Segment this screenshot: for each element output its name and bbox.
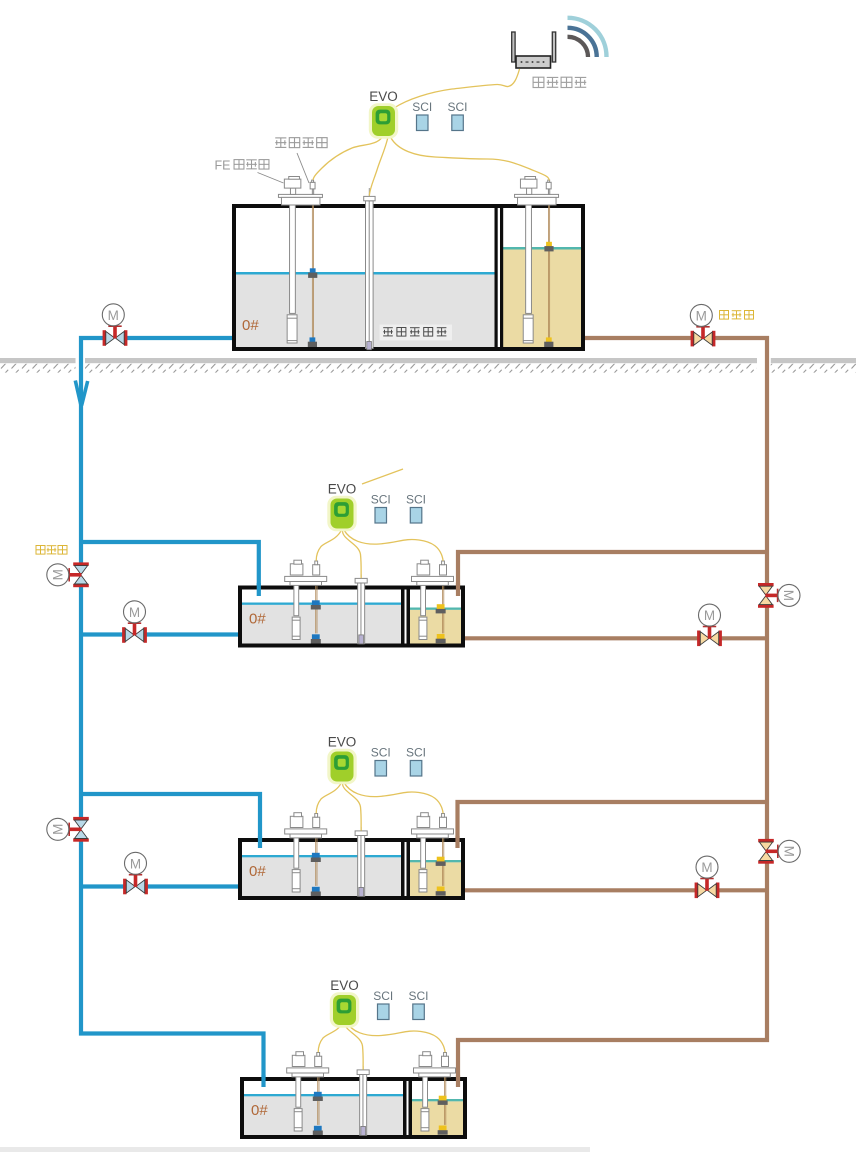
svg-text:M: M (701, 860, 712, 875)
svg-text:M: M (51, 824, 66, 835)
svg-text:M: M (51, 569, 66, 580)
svg-text:M: M (129, 605, 140, 620)
svg-text:M: M (781, 846, 796, 857)
svg-text:M: M (696, 308, 707, 323)
svg-text:M: M (704, 608, 715, 623)
svg-text:FE: FE (215, 159, 231, 173)
svg-text:M: M (130, 856, 141, 871)
svg-text:M: M (108, 308, 119, 323)
svg-text:M: M (781, 590, 796, 601)
svg-text:0#: 0# (242, 317, 259, 334)
